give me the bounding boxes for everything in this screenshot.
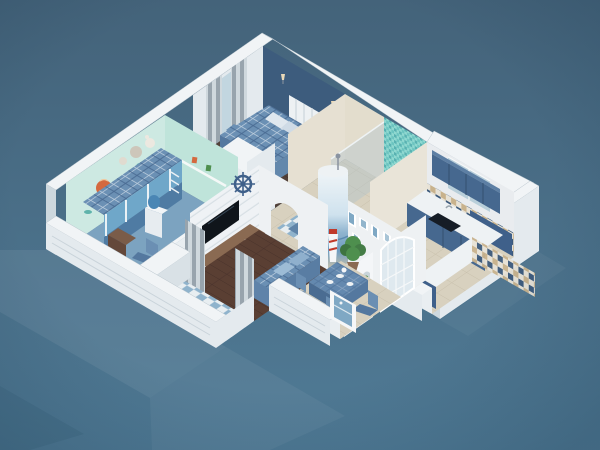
isometric-floor-plan-render [0, 0, 600, 450]
render-canvas [0, 0, 600, 450]
vignette [0, 0, 600, 450]
